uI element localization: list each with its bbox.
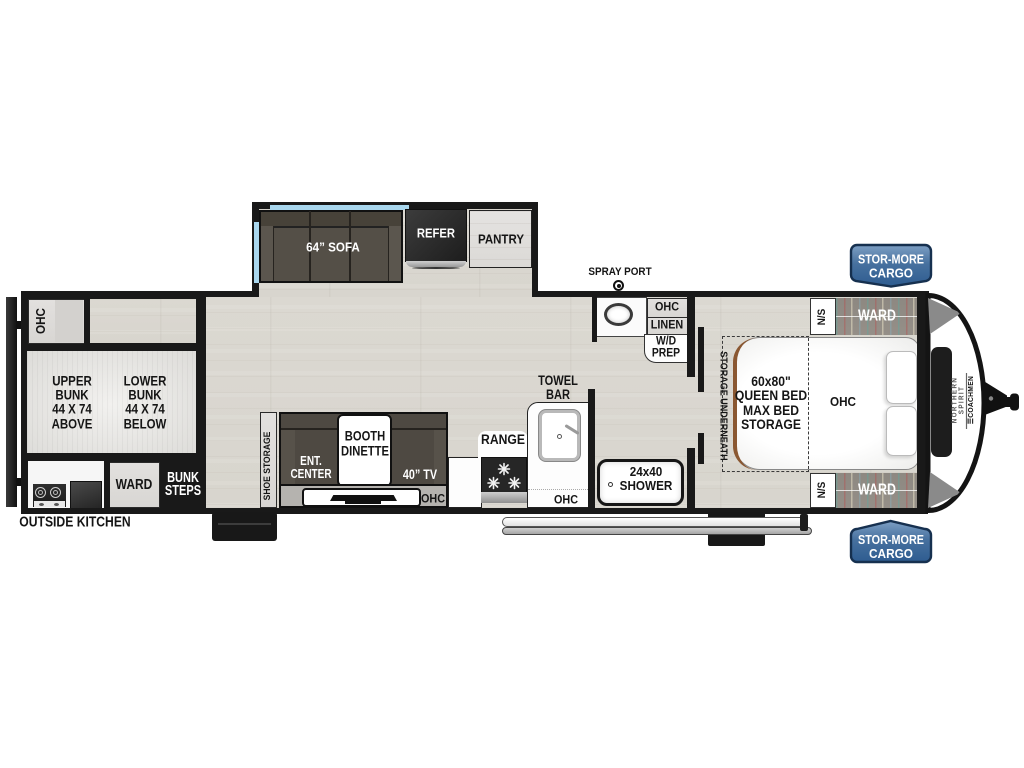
svg-text:STOR-MORE: STOR-MORE — [858, 532, 924, 547]
svg-text:CARGO: CARGO — [869, 266, 913, 281]
svg-text:STOR-MORE: STOR-MORE — [858, 252, 924, 267]
svg-text:CARGO: CARGO — [869, 546, 913, 561]
